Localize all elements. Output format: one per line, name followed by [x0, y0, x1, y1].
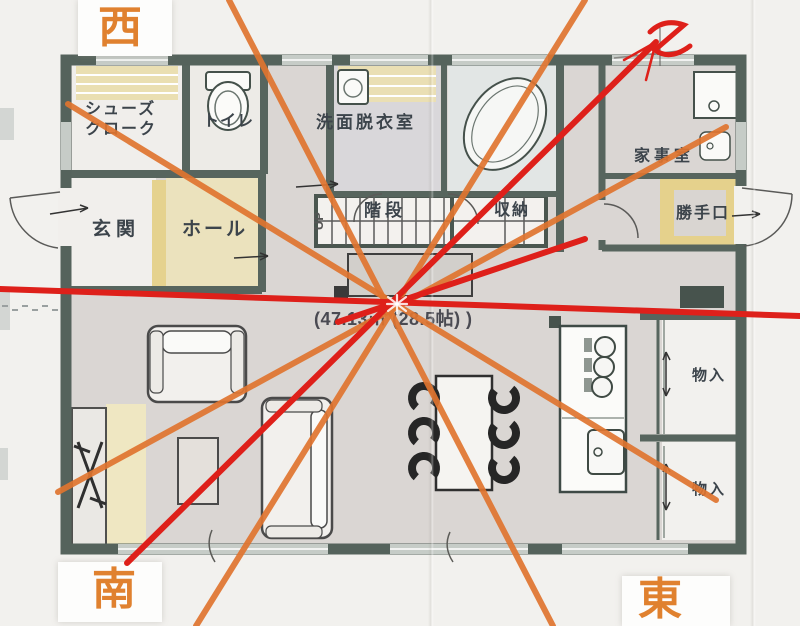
north-mark-icon — [650, 23, 690, 55]
center-starburst — [387, 295, 407, 313]
floor-plan-scan: シューズ クローク トイレ 洗面脱衣室 家事室 勝手口 玄関 ホール UP 階段… — [0, 0, 800, 626]
direction-lines-overlay — [0, 0, 800, 626]
